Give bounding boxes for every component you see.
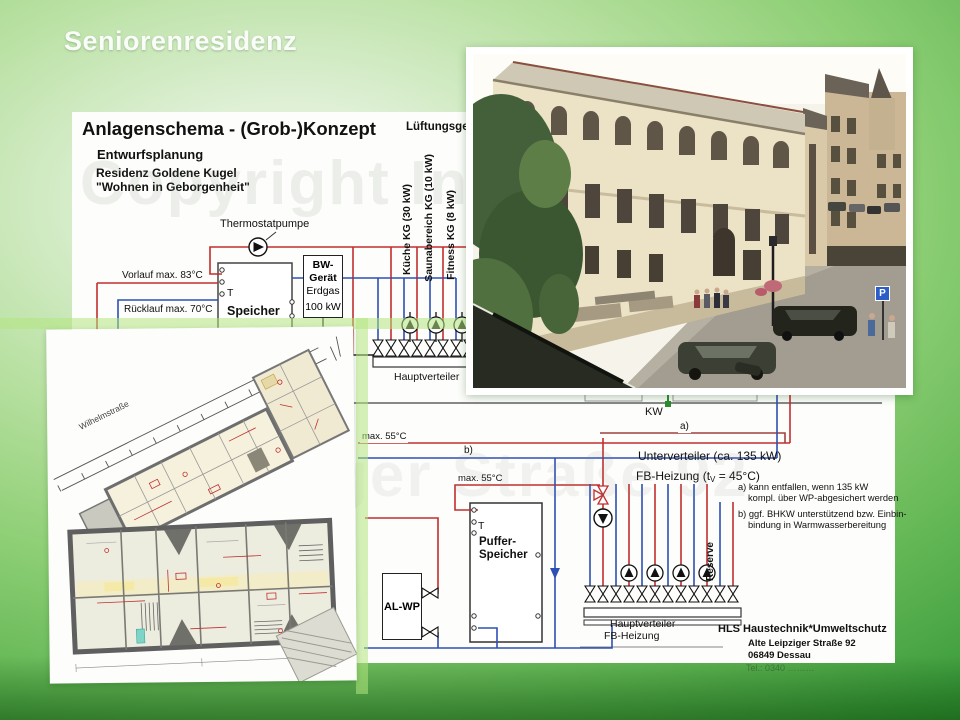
label-ruecklauf: Rücklauf max. 70°C	[124, 304, 212, 316]
fb-heizung-pre: FB-Heizung (t	[636, 469, 710, 483]
label-reserve: Reserve	[705, 542, 716, 581]
alwp-label: AL-WP	[384, 601, 420, 613]
label-fitness: Fitness KG (8 kW)	[445, 190, 457, 280]
label-puffer-speicher: Puffer- Speicher	[479, 536, 528, 562]
note-a-line1: a) kann entfallen, wenn 135 kW	[738, 482, 868, 493]
valve-icon	[422, 627, 438, 637]
company-city: 06849 Dessau	[748, 651, 811, 662]
slide: Seniorenresidenz	[0, 0, 960, 720]
label-hauptverteiler: Hauptverteiler	[394, 371, 459, 383]
page-title: Seniorenresidenz	[64, 26, 297, 57]
bw-label: Gerät	[304, 272, 342, 285]
bw-label: Erdgas	[304, 285, 342, 298]
note-a-line2: kompl. über WP-abgesichert werden	[748, 493, 898, 504]
label-vorlauf: Vorlauf max. 83°C	[120, 270, 205, 282]
label-saunabereich: Saunabereich KG (10 kW)	[423, 154, 435, 282]
mixing-valve-icon	[594, 486, 608, 504]
project-motto: "Wohnen in Geborgenheit"	[96, 181, 250, 195]
bw-label: 100 kW	[304, 301, 342, 314]
label-a-marker: a)	[678, 421, 691, 433]
label-thermostatpumpe: Thermostatpumpe	[220, 218, 309, 231]
note-b-line1: b) ggf. BHKW unterstützend bzw. Einbin-	[738, 509, 906, 520]
label-max55-2: max. 55°C	[458, 474, 502, 485]
hv-fb-line2: FB-Heizung	[604, 630, 675, 642]
label-kw: KW	[645, 406, 663, 419]
pump-icon	[647, 565, 663, 581]
label-unterverteiler: Unterverteiler (ca. 135 kW)	[638, 450, 781, 464]
building-photo	[473, 54, 906, 388]
building-photo-frame: P	[466, 47, 913, 395]
schematic-heading: Anlagenschema - (Grob-)Konzept	[82, 118, 376, 139]
company-street: Alte Leipziger Straße 92	[748, 639, 856, 650]
hv-fb-line1: Hauptverteiler	[610, 618, 675, 630]
highlight-band-vertical	[356, 318, 368, 694]
project-name: Residenz Goldene Kugel	[96, 167, 237, 181]
note-b-line2: bindung in Warmwasserbereitung	[748, 520, 886, 531]
puffer-line2: Speicher	[479, 549, 528, 562]
company-name: HLS Haustechnik*Umweltschutz	[718, 623, 887, 636]
label-b-marker: b)	[462, 445, 475, 457]
bw-label: BW-	[304, 259, 342, 272]
pump-icon	[594, 509, 612, 527]
fb-heizung-post: = 45°C)	[715, 469, 759, 483]
label-kueche: Küche KG (30 kW)	[401, 184, 413, 275]
thermostat-pump-icon	[249, 238, 267, 256]
schematic-subheading: Entwurfsplanung	[97, 148, 203, 163]
puffer-line1: Puffer-	[479, 536, 528, 549]
pump-icon	[673, 565, 689, 581]
parking-sign: P	[875, 286, 890, 301]
label-speicher: Speicher	[227, 304, 280, 318]
flow-arrow-icon	[550, 568, 560, 579]
alwp-box: AL-WP	[382, 573, 422, 640]
pump-icon	[621, 565, 637, 581]
company-phone: Tel.: 0340 ………	[746, 663, 815, 673]
label-hv-fb: Hauptverteiler FB-Heizung	[610, 618, 675, 642]
floor-plan-drawing	[46, 326, 357, 683]
floorplan-panel: Wilhelmstraße	[46, 326, 357, 683]
fb-manifold	[584, 565, 741, 625]
valve-icon	[422, 588, 438, 598]
label-t-sensor: T	[227, 287, 233, 299]
bw-geraet-box: BW- Gerät Erdgas 100 kW	[303, 255, 343, 318]
label-t-sensor2: T	[478, 520, 484, 532]
